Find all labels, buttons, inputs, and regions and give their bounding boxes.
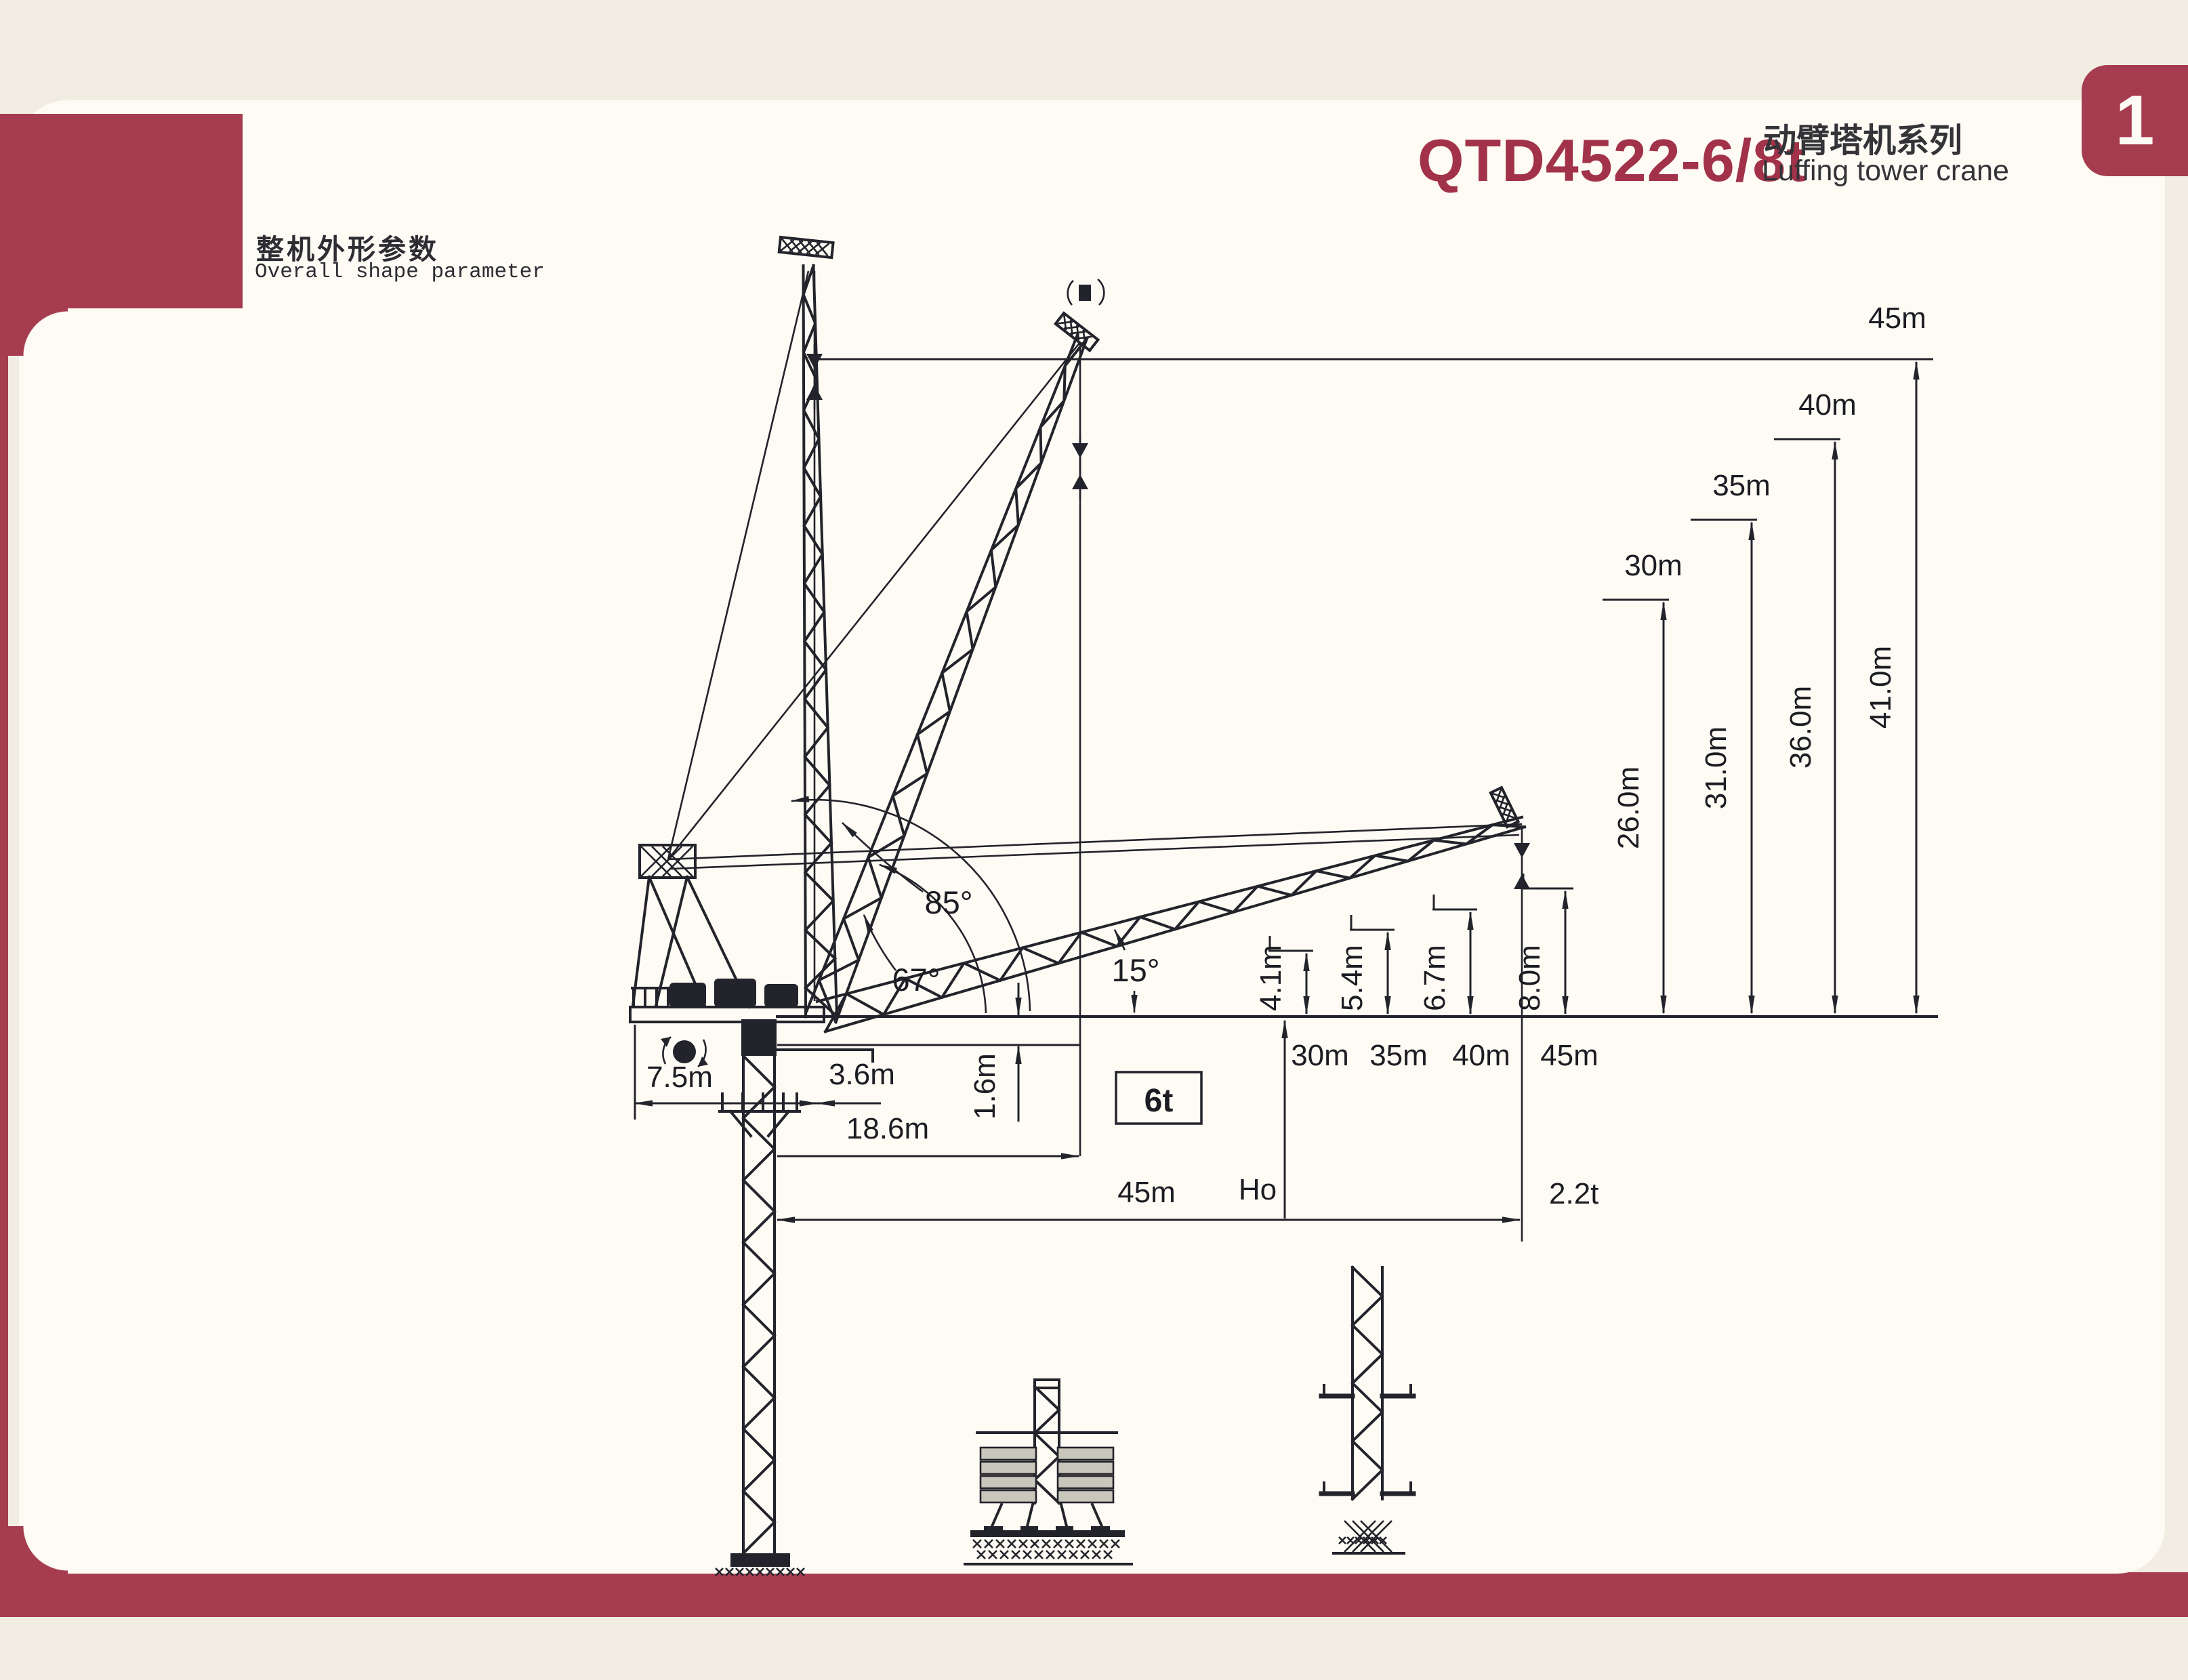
label-jib-30m: 30m xyxy=(1624,549,1683,582)
label-max-radius: 45m xyxy=(1117,1176,1176,1209)
label-slew-offset: 3.6m xyxy=(829,1058,895,1091)
label-angle-67: 67° xyxy=(892,962,940,998)
jib-85deg xyxy=(804,266,838,1017)
label-angle-85: 85° xyxy=(924,884,972,920)
series-title-en: Luffing tower crane xyxy=(1762,155,2009,188)
catalog-page: QTD4522-6/8t 动臂塔机系列 Luffing tower crane … xyxy=(0,0,2188,1680)
label-hook-5-4m: 5.4m xyxy=(1336,945,1369,1011)
swivel-icon xyxy=(1068,279,1105,305)
crane-structure xyxy=(630,237,1530,1576)
hook-block-67 xyxy=(1072,434,1088,499)
label-height-31m: 31.0m xyxy=(1699,726,1733,809)
label-angle-15: 15° xyxy=(1111,952,1159,988)
label-hook-height-symbol: Ho xyxy=(1239,1173,1277,1206)
label-radius-30m: 30m xyxy=(1291,1039,1349,1072)
hook-block-85 xyxy=(806,344,823,409)
label-height-36m: 36.0m xyxy=(1784,686,1817,769)
label-pivot-height: 1.6m xyxy=(968,1053,1002,1120)
tower-head xyxy=(741,1019,777,1056)
label-jib-35m: 35m xyxy=(1712,469,1771,502)
label-hook-4-1m: 4.1m xyxy=(1254,945,1287,1011)
label-radius-45m: 45m xyxy=(1540,1039,1598,1072)
label-jib-40m: 40m xyxy=(1798,388,1857,422)
label-radius-40m: 40m xyxy=(1452,1039,1510,1072)
label-hook-8-0m: 8.0m xyxy=(1513,945,1546,1011)
label-height-41m: 41.0m xyxy=(1864,646,1897,729)
figure-ballast-base xyxy=(965,1380,1132,1564)
label-height-26m: 26.0m xyxy=(1612,766,1645,849)
counter-jib-deck xyxy=(630,1007,824,1022)
section-title-en: Overall shape parameter xyxy=(255,260,545,284)
dimension-labels: 45m 40m 35m 30m 41.0m 36.0m 31.0m 26.0m … xyxy=(646,302,1926,1210)
label-radius-35m: 35m xyxy=(1369,1039,1428,1072)
label-capacity-rated: 6t xyxy=(1144,1083,1174,1119)
figure-anchored-mast xyxy=(1321,1267,1413,1553)
label-counter-radius: 7.5m xyxy=(646,1061,713,1094)
label-hook-6-7m: 6.7m xyxy=(1418,945,1451,1011)
label-min-radius: 18.6m xyxy=(846,1112,929,1145)
tower-ground-hatch xyxy=(716,1568,804,1576)
label-capacity-tip: 2.2t xyxy=(1549,1177,1598,1210)
page-title: QTD4522-6/8t xyxy=(1418,126,1807,195)
label-jib-45m: 45m xyxy=(1868,302,1926,335)
tower-base xyxy=(730,1553,790,1567)
luffing-winch xyxy=(714,979,756,1007)
pendant-ropes xyxy=(668,271,1522,869)
page-number-badge: 1 xyxy=(2082,65,2188,176)
